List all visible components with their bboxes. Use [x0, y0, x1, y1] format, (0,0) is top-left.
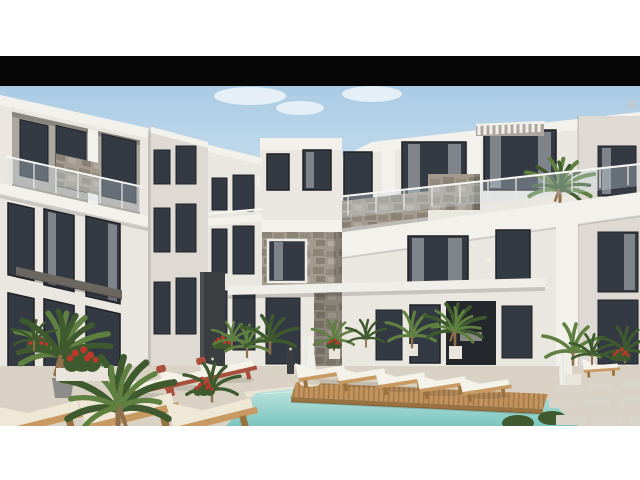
window: [267, 154, 289, 190]
window: [212, 229, 227, 273]
window: [176, 278, 196, 334]
window: [496, 230, 530, 282]
window: [154, 150, 170, 184]
window: [502, 306, 532, 358]
window: [154, 282, 170, 334]
letterboxed-photo: [0, 56, 640, 426]
window: [176, 204, 196, 252]
resort-rendering: [0, 86, 640, 426]
wall-lamp: [487, 258, 491, 262]
cloud: [214, 87, 286, 105]
cloud: [276, 101, 324, 115]
window: [233, 175, 254, 211]
letterbox-top-bar: [0, 56, 640, 86]
window: [154, 208, 170, 252]
window: [212, 178, 227, 210]
plant-pot: [449, 346, 462, 359]
window: [268, 240, 306, 282]
cloud: [342, 86, 402, 102]
bollard-light: [287, 348, 294, 375]
tower-parapet: [260, 138, 342, 150]
window: [176, 146, 196, 184]
pergola-slats: [476, 122, 545, 136]
page: { "media": { "type": "architectural-rend…: [0, 0, 640, 480]
window: [233, 226, 254, 274]
